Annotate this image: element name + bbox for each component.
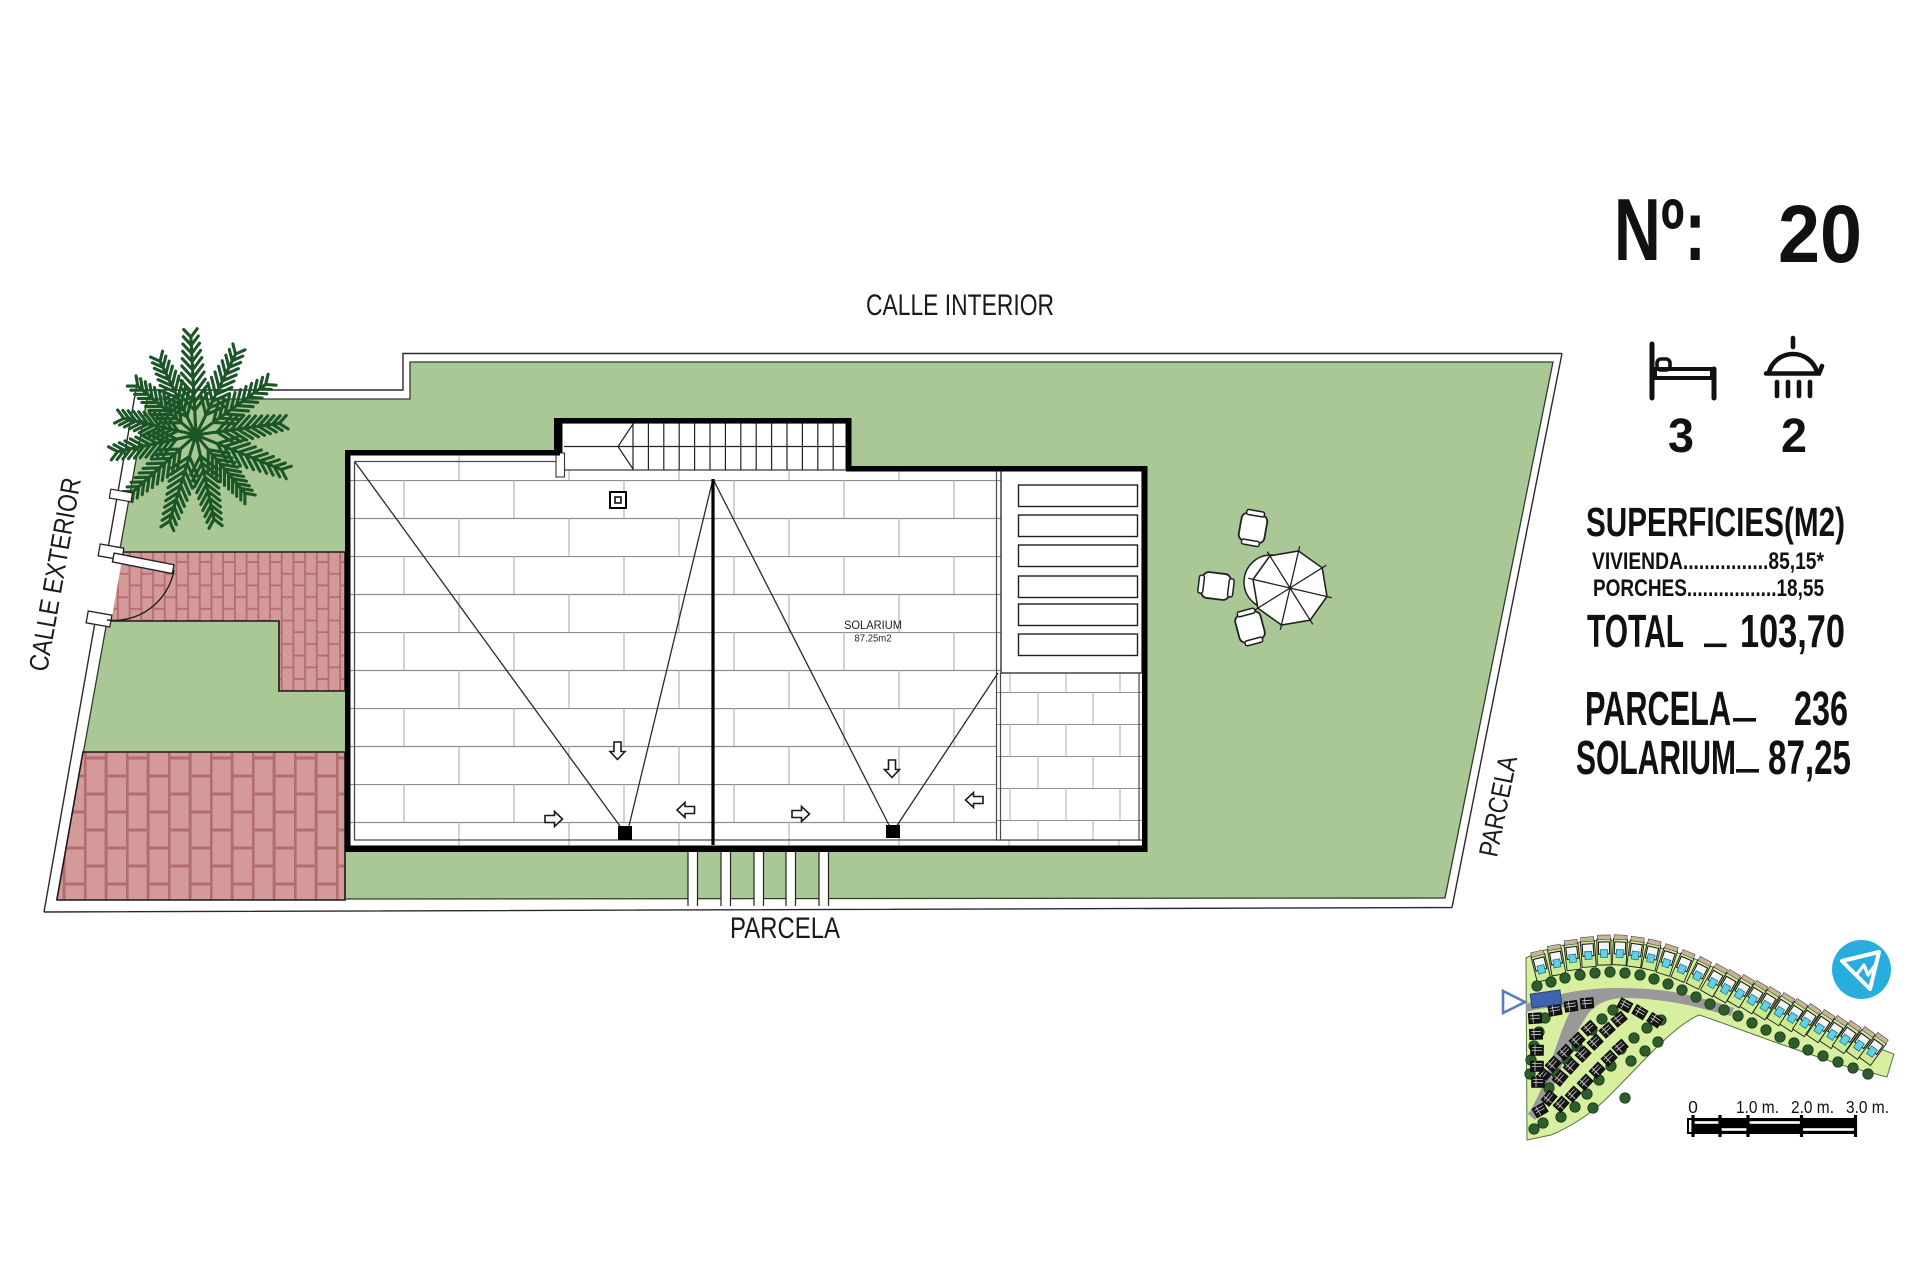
- svg-text:PARCELA: PARCELA: [1585, 683, 1731, 736]
- svg-text:SOLARIUM: SOLARIUM: [1576, 732, 1736, 785]
- svg-text:87,25: 87,25: [1768, 732, 1851, 785]
- svg-text:SOLARIUM: SOLARIUM: [844, 618, 902, 632]
- svg-text:2: 2: [1781, 410, 1807, 463]
- svg-text:2.0 m.: 2.0 m.: [1791, 1097, 1834, 1117]
- svg-text:236: 236: [1794, 683, 1848, 736]
- svg-text:PORCHES.................18,55: PORCHES.................18,55: [1593, 575, 1824, 602]
- svg-text:3: 3: [1668, 410, 1694, 463]
- svg-text:1.0 m.: 1.0 m.: [1736, 1097, 1779, 1117]
- svg-text:VIVIENDA................85,15*: VIVIENDA................85,15*: [1592, 548, 1825, 575]
- svg-text:Nº:: Nº:: [1614, 180, 1706, 279]
- svg-text:PARCELA: PARCELA: [730, 912, 840, 945]
- svg-text:SUPERFICIES(M2): SUPERFICIES(M2): [1586, 499, 1845, 545]
- svg-text:87.25m2: 87.25m2: [855, 633, 892, 645]
- svg-text:0: 0: [1688, 1097, 1698, 1117]
- svg-text:20: 20: [1778, 189, 1862, 280]
- svg-text:TOTAL: TOTAL: [1587, 605, 1684, 657]
- svg-text:CALLE INTERIOR: CALLE INTERIOR: [866, 289, 1054, 322]
- svg-text:103,70: 103,70: [1740, 605, 1845, 657]
- svg-text:3.0 m.: 3.0 m.: [1846, 1097, 1889, 1117]
